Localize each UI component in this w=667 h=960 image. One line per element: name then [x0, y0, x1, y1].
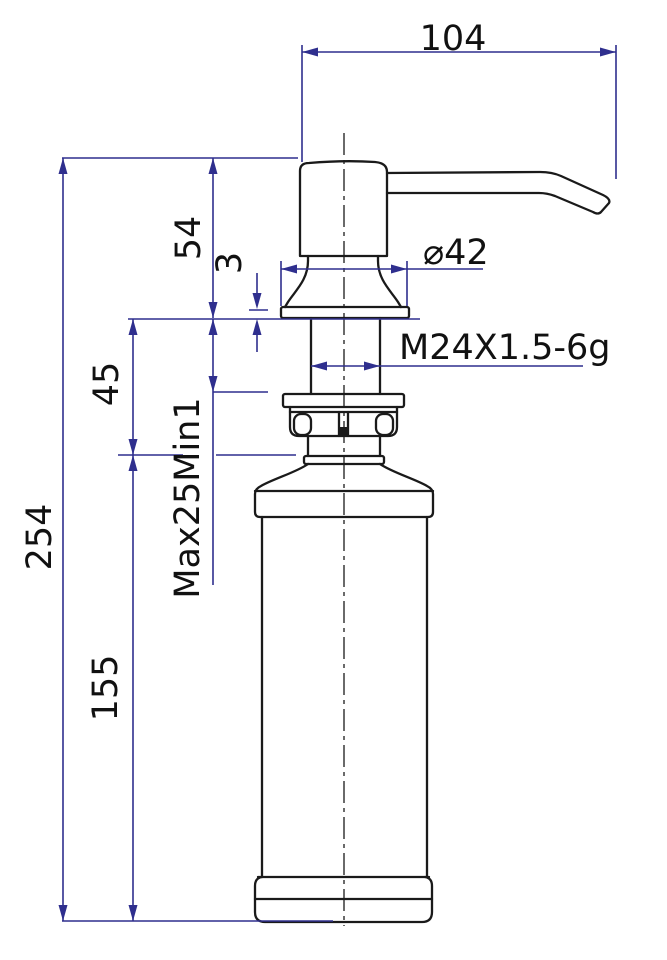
dim-mount-thickness [209, 319, 218, 585]
technical-drawing-canvas: 104 254 54 3 45 Max25Min1 155 ⌀42 M24X1.… [0, 0, 667, 960]
dim-label-head-height: 54 [169, 216, 209, 261]
dim-label-thread: M24X1.5-6g [399, 328, 611, 368]
bell-flange-plate [281, 307, 409, 318]
bell-left-curve [285, 256, 308, 307]
nut-tab-left [294, 414, 311, 435]
dim-label-flange-diameter: ⌀42 [423, 233, 489, 273]
thread-shaft [311, 318, 380, 394]
dim-label-overall-height: 254 [20, 504, 60, 571]
dim-label-neck-exposed-height: 45 [87, 362, 127, 407]
dimension-lines [59, 45, 617, 921]
dimension-labels: 104 254 54 3 45 Max25Min1 155 ⌀42 M24X1.… [20, 19, 611, 721]
bell-right-curve [378, 256, 401, 307]
dim-label-flange-thickness: 3 [210, 252, 250, 274]
nut-tab-right [376, 414, 393, 435]
dim-bottle-height [129, 455, 138, 921]
dim-neck-exposed-height [129, 319, 138, 455]
dim-label-bottle-height: 155 [86, 655, 126, 722]
dispenser-drawing: 104 254 54 3 45 Max25Min1 155 ⌀42 M24X1.… [0, 0, 667, 960]
dim-label-spout-reach: 104 [420, 19, 487, 59]
dim-label-mount-thickness: Max25Min1 [168, 397, 208, 598]
dim-spout-reach [302, 45, 616, 179]
dim-flange-thickness [253, 273, 262, 352]
dim-head-height [209, 158, 218, 318]
pump-spout [387, 172, 609, 214]
